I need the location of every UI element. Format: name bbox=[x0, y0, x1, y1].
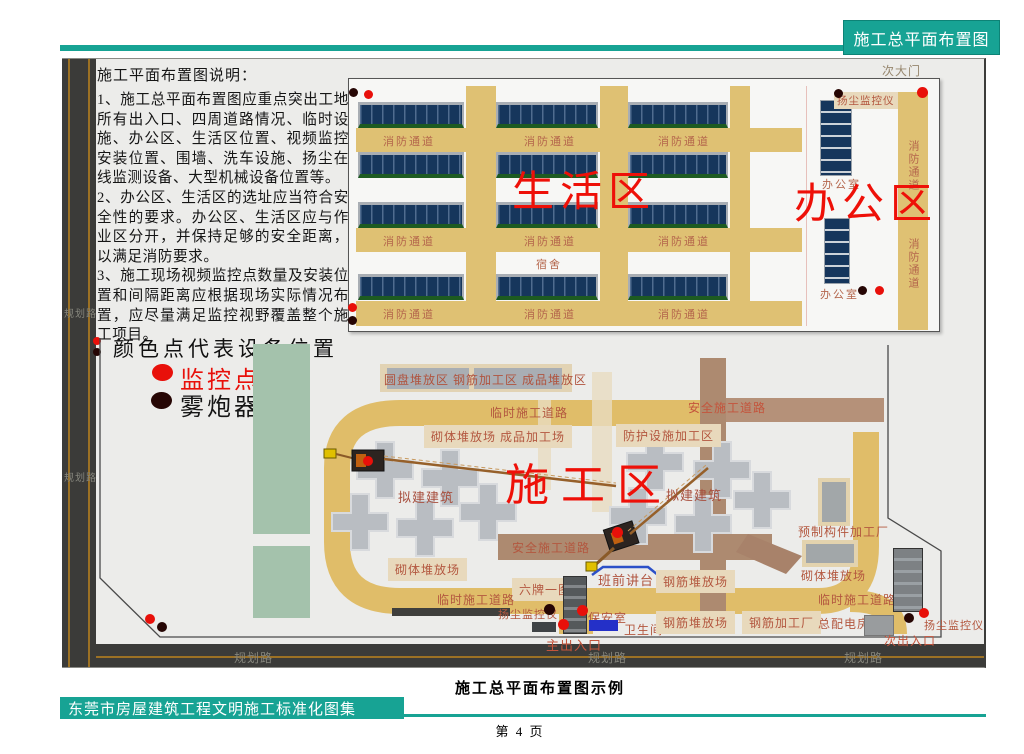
secondary-exit-label: 次出入口 bbox=[884, 632, 936, 649]
fog-cannon-dot bbox=[544, 604, 555, 615]
wash-trough bbox=[392, 608, 510, 616]
storage-strip-label: 圆盘堆放区 钢筋加工区 成品堆放区 bbox=[384, 371, 587, 388]
temp-road-label: 临时施工道路 bbox=[490, 404, 568, 421]
monitor-dot bbox=[145, 614, 155, 624]
fog-cannon-dot bbox=[904, 613, 914, 623]
monitor-dot bbox=[919, 608, 929, 618]
toilet-building bbox=[589, 620, 618, 631]
main-gate-label: 主出入口 bbox=[546, 635, 602, 654]
protection-area-label: 防护设施加工区 bbox=[616, 424, 721, 447]
monitor-dot bbox=[612, 527, 623, 538]
fog-cannon-dot bbox=[157, 622, 167, 632]
footer-title: 东莞市房屋建筑工程文明施工标准化图集 bbox=[60, 697, 404, 719]
proposed-building-label: 拟建建筑 bbox=[666, 485, 722, 504]
atlas-page: 施工总平面布置图 规划路 规划路 规划路 规划路 规划路 施工平面布置图说明： … bbox=[0, 0, 1024, 754]
pre-shift-platform-label: 班前讲台 bbox=[598, 570, 654, 589]
precast-factory-label: 预制构件加工厂 bbox=[798, 523, 889, 540]
rebar-yard-label: 钢筋堆放场 bbox=[656, 570, 735, 593]
masonry-yard-building bbox=[802, 540, 858, 567]
rebar-yard-label: 钢筋堆放场 bbox=[656, 611, 735, 634]
gate-booth bbox=[532, 622, 556, 632]
monitor-dot bbox=[558, 619, 569, 630]
dust-monitor-label: 扬尘监控仪 bbox=[924, 617, 984, 633]
masonry-yard-label: 砌体堆放场 bbox=[388, 558, 467, 581]
main-power-room-label: 总配电房 bbox=[818, 615, 870, 632]
monitor-dot bbox=[577, 605, 588, 616]
masonry-yard-label: 砌体堆放场 bbox=[801, 567, 866, 584]
monitor-dot bbox=[363, 456, 373, 466]
footer-accent-line bbox=[404, 714, 986, 717]
masonry-finished-label: 砌体堆放场 成品加工场 bbox=[424, 425, 572, 448]
page-number: 第 4 页 bbox=[460, 721, 580, 740]
safe-road-label: 安全施工道路 bbox=[688, 399, 766, 416]
temp-road-label: 临时施工道路 bbox=[818, 591, 896, 608]
rebar-factory-label: 钢筋加工厂 bbox=[742, 611, 821, 634]
construction-zone-label: 施工区 bbox=[505, 464, 673, 508]
secondary-gate-structure bbox=[893, 548, 923, 612]
safe-road-label: 安全施工道路 bbox=[512, 539, 590, 556]
precast-factory-building bbox=[818, 478, 850, 526]
proposed-building-label: 拟建建筑 bbox=[398, 487, 454, 506]
figure-caption: 施工总平面布置图示例 bbox=[380, 677, 700, 698]
